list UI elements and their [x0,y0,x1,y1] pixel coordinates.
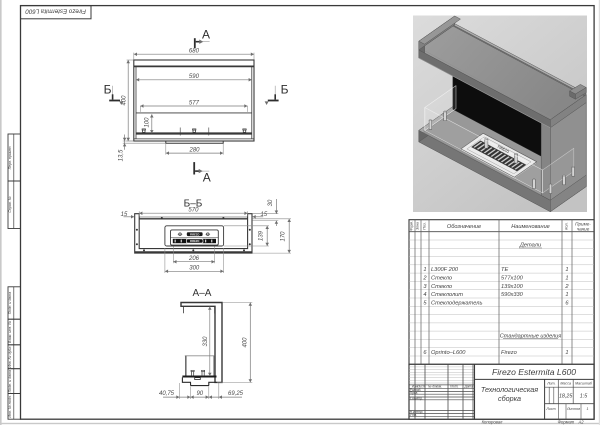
svg-text:Подп. и дата: Подп. и дата [8,370,12,393]
svg-text:206: 206 [188,256,200,262]
svg-text:280: 280 [188,148,200,154]
svg-text:Технологическая: Технологическая [481,385,538,394]
svg-text:Зона: Зона [416,222,420,230]
svg-text:590: 590 [189,74,200,80]
svg-text:Копировал: Копировал [482,419,503,424]
svg-text:Инв. № дубл.: Инв. № дубл. [8,346,12,368]
svg-text:Подп. и дата: Подп. и дата [8,292,12,315]
svg-text:1: 1 [587,407,589,411]
svg-text:1: 1 [565,276,568,282]
svg-text:1: 1 [423,267,426,273]
svg-text:FIREZO: FIREZO [190,232,200,236]
svg-text:4: 4 [423,292,426,298]
svg-text:18,25: 18,25 [559,394,573,400]
svg-text:Обозначение: Обозначение [447,224,481,230]
svg-text:680: 680 [189,49,200,55]
svg-text:Форм.: Форм. [410,221,414,231]
svg-text:570: 570 [188,208,199,214]
svg-text:Firezo Estermita L600: Firezo Estermita L600 [25,8,86,15]
svg-text:1:5: 1:5 [580,394,588,400]
svg-text:1: 1 [565,267,568,273]
svg-text:15: 15 [261,212,268,218]
svg-text:170: 170 [281,231,287,242]
svg-text:1: 1 [565,292,568,298]
svg-text:1: 1 [565,350,568,356]
svg-text:Детали: Детали [519,243,542,249]
svg-text:А: А [203,171,211,185]
svg-text:139: 139 [258,230,264,241]
svg-text:Формат: Формат [558,419,575,424]
svg-text:Инв. № подл.: Инв. № подл. [8,395,12,417]
svg-text:100: 100 [145,117,151,128]
svg-text:Пров.: Пров. [410,391,419,395]
svg-text:№ докум.: № докум. [428,385,442,389]
svg-text:Взам. инв. №: Взам. инв. № [8,321,12,343]
svg-text:Т.контр.: Т.контр. [410,396,423,400]
svg-text:Кол.: Кол. [564,222,568,229]
svg-text:Дата: Дата [464,385,474,389]
svg-text:90: 90 [196,391,203,397]
svg-text:Стеклолит: Стеклолит [431,292,463,298]
svg-text:Подп.: Подп. [450,385,459,389]
svg-text:Firezo: Firezo [501,350,517,356]
svg-text:А: А [202,28,210,42]
svg-text:Стекло: Стекло [431,284,452,290]
svg-text:30: 30 [268,199,274,206]
svg-text:FIREZO: FIREZO [190,239,200,243]
svg-text:Листов: Листов [566,407,580,411]
svg-text:Лист: Лист [545,407,555,411]
svg-text:577х100: 577х100 [501,276,524,282]
svg-text:40,75: 40,75 [159,391,175,397]
svg-text:330: 330 [203,336,209,347]
svg-text:Поз.: Поз. [423,222,427,230]
svg-text:сборка: сборка [498,394,521,403]
svg-text:Б: Б [104,83,112,97]
svg-text:Перв. примен.: Перв. примен. [8,146,12,170]
svg-text:13,5: 13,5 [119,149,125,161]
svg-text:А–А: А–А [193,288,212,299]
svg-text:Наименование: Наименование [511,224,550,230]
svg-text:Справ. №: Справ. № [8,196,12,212]
svg-text:Масштаб: Масштаб [575,382,593,386]
svg-text:Стекло: Стекло [431,276,452,282]
svg-text:Лит.: Лит. [546,382,555,386]
svg-text:ТЕ: ТЕ [501,267,508,273]
svg-text:69,25: 69,25 [228,391,244,397]
svg-text:400: 400 [122,95,128,106]
svg-text:590х330: 590х330 [501,292,524,298]
svg-text:577: 577 [189,100,200,106]
svg-text:L300F 200: L300F 200 [431,267,459,273]
svg-text:Б: Б [281,83,289,97]
svg-text:А2: А2 [577,419,584,424]
svg-text:300: 300 [189,266,200,272]
svg-text:Масса: Масса [560,382,571,386]
svg-text:Oprinto–L600: Oprinto–L600 [431,350,466,356]
svg-text:Стеклодержатель: Стеклодержатель [431,300,482,306]
svg-text:15: 15 [121,212,128,218]
svg-text:Утв.: Утв. [410,413,417,417]
svg-text:400: 400 [242,337,248,348]
svg-text:Firezo Estermita L600: Firezo Estermita L600 [492,367,576,377]
svg-text:139х100: 139х100 [501,284,524,290]
svg-text:чание: чание [577,227,590,232]
